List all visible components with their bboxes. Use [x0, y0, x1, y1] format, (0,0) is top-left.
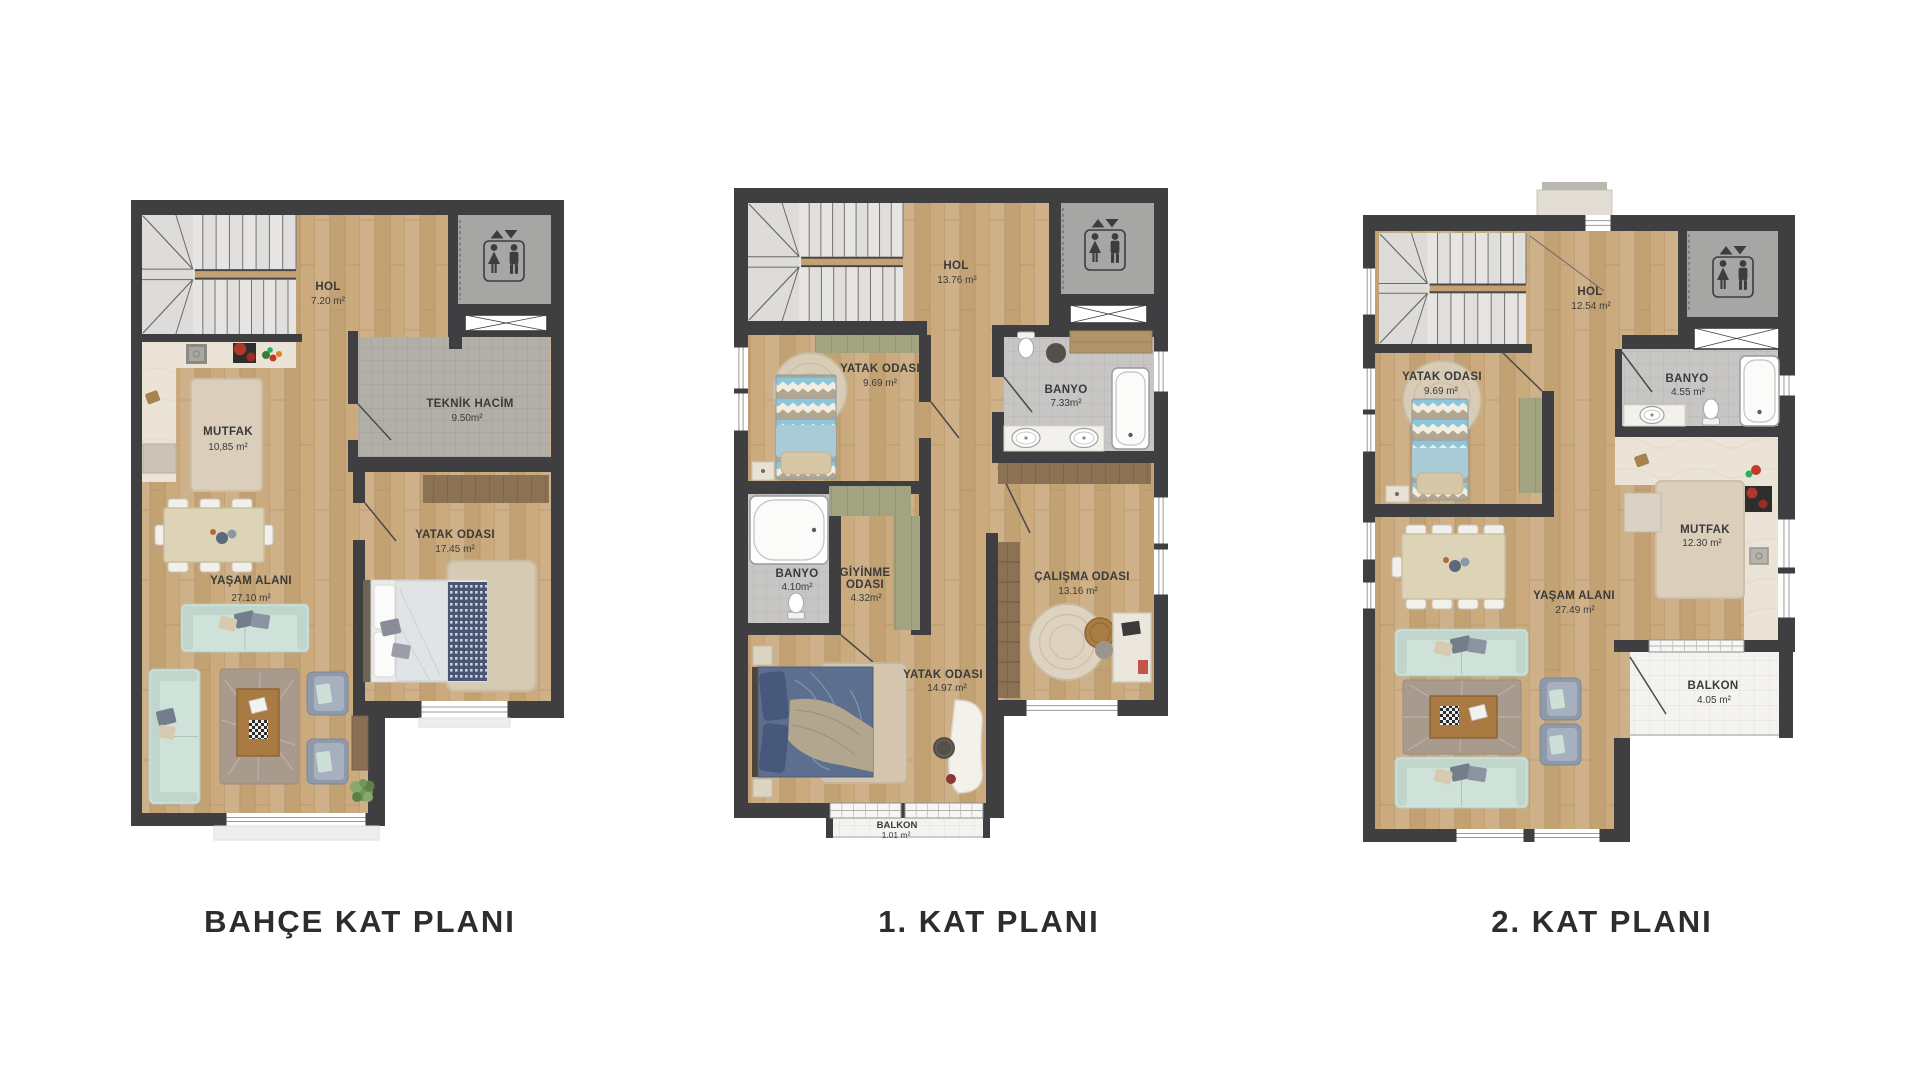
svg-text:BALKON: BALKON	[1688, 680, 1739, 692]
svg-text:HOL: HOL	[943, 260, 968, 272]
svg-text:HOL: HOL	[315, 281, 340, 293]
svg-text:13.16 m²: 13.16 m²	[1058, 586, 1098, 597]
svg-text:ODASI: ODASI	[846, 579, 884, 591]
svg-text:YATAK ODASI: YATAK ODASI	[903, 669, 983, 681]
svg-text:10,85 m²: 10,85 m²	[208, 442, 248, 453]
svg-text:17.45 m²: 17.45 m²	[435, 544, 475, 555]
svg-text:9.50m²: 9.50m²	[451, 413, 483, 424]
svg-text:YATAK ODASI: YATAK ODASI	[840, 363, 920, 375]
svg-text:13.76 m²: 13.76 m²	[937, 275, 977, 286]
svg-text:2. KAT PLANI: 2. KAT PLANI	[1491, 904, 1713, 939]
svg-text:14.97 m²: 14.97 m²	[927, 683, 967, 694]
svg-text:4.55 m²: 4.55 m²	[1671, 387, 1706, 398]
svg-text:YAŞAM ALANI: YAŞAM ALANI	[1533, 590, 1615, 602]
svg-text:4.10m²: 4.10m²	[781, 582, 813, 593]
svg-text:TEKNİK HACİM: TEKNİK HACİM	[426, 397, 513, 410]
svg-text:ÇALIŞMA ODASI: ÇALIŞMA ODASI	[1034, 571, 1129, 583]
svg-text:12.30 m²: 12.30 m²	[1682, 538, 1722, 549]
svg-text:4.05 m²: 4.05 m²	[1697, 695, 1732, 706]
svg-text:YATAK ODASI: YATAK ODASI	[415, 529, 495, 541]
svg-text:YATAK ODASI: YATAK ODASI	[1402, 371, 1482, 383]
svg-text:HOL: HOL	[1577, 286, 1602, 298]
svg-text:BANYO: BANYO	[1044, 384, 1087, 396]
svg-text:GİYİNME: GİYİNME	[840, 566, 891, 579]
svg-text:BAHÇE KAT PLANI: BAHÇE KAT PLANI	[204, 904, 516, 939]
svg-text:MUTFAK: MUTFAK	[1680, 524, 1730, 536]
svg-text:7.33m²: 7.33m²	[1050, 398, 1082, 409]
svg-text:9.69 m²: 9.69 m²	[863, 378, 898, 389]
svg-text:9.69 m²: 9.69 m²	[1424, 386, 1459, 397]
svg-text:YAŞAM ALANI: YAŞAM ALANI	[210, 575, 292, 587]
svg-text:BANYO: BANYO	[1665, 373, 1708, 385]
svg-text:27.49 m²: 27.49 m²	[1555, 605, 1595, 616]
svg-text:4.32m²: 4.32m²	[850, 593, 882, 604]
svg-text:27.10 m²: 27.10 m²	[231, 593, 271, 604]
svg-text:MUTFAK: MUTFAK	[203, 426, 253, 438]
svg-text:12.54 m²: 12.54 m²	[1571, 301, 1611, 312]
svg-text:7.20 m²: 7.20 m²	[311, 296, 346, 307]
svg-text:BANYO: BANYO	[775, 568, 818, 580]
svg-text:1. KAT PLANI: 1. KAT PLANI	[878, 904, 1100, 939]
svg-text:1.01 m²: 1.01 m²	[882, 830, 911, 840]
